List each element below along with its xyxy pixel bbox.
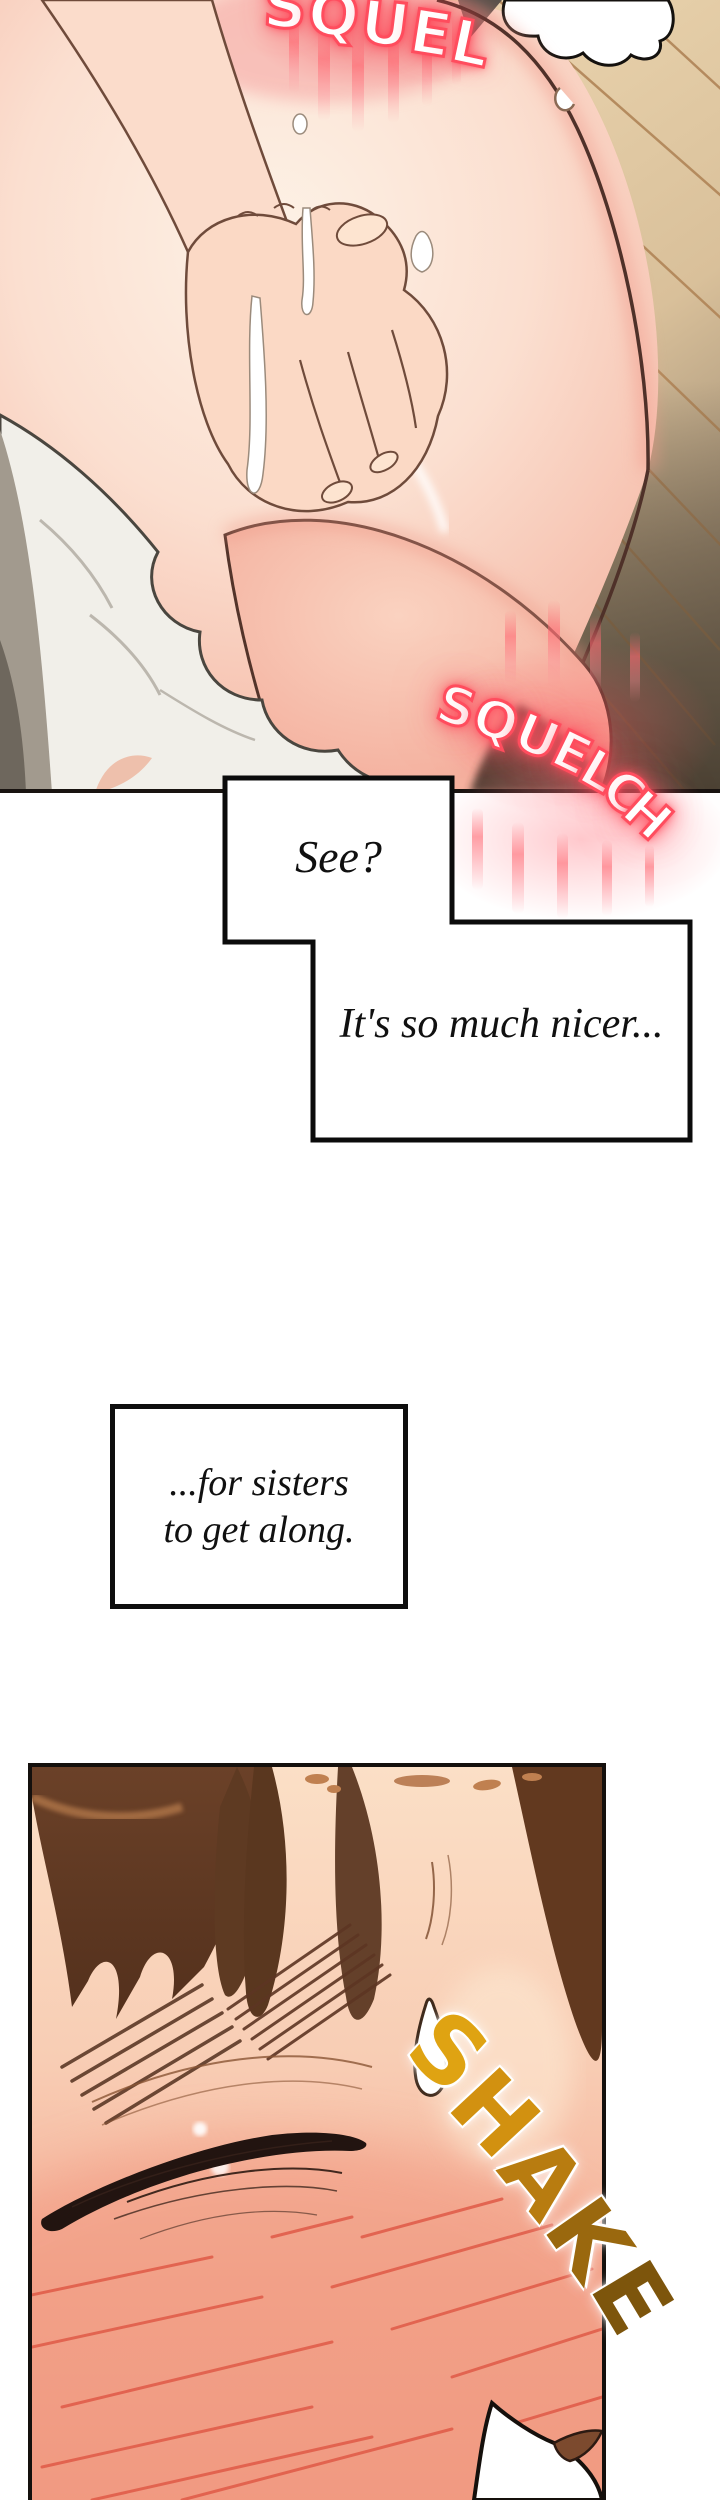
speech-bubble-group: [0, 750, 720, 1190]
speech-text-nicer: It's so much nicer...: [313, 1000, 690, 1048]
comic-page: SQUEL SQUELCH See? It's so much nicer...…: [0, 0, 720, 2500]
caption-line-1: ...for sisters: [169, 1460, 348, 1507]
speech-text-see: See?: [225, 830, 452, 883]
caption-line-2: to get along.: [163, 1507, 354, 1554]
caption-box: ...for sisters to get along.: [110, 1404, 408, 1609]
sfx-streak: [548, 600, 560, 688]
sfx-streak: [590, 615, 601, 695]
sfx-streak: [505, 610, 516, 685]
sfx-streak: [630, 632, 640, 702]
